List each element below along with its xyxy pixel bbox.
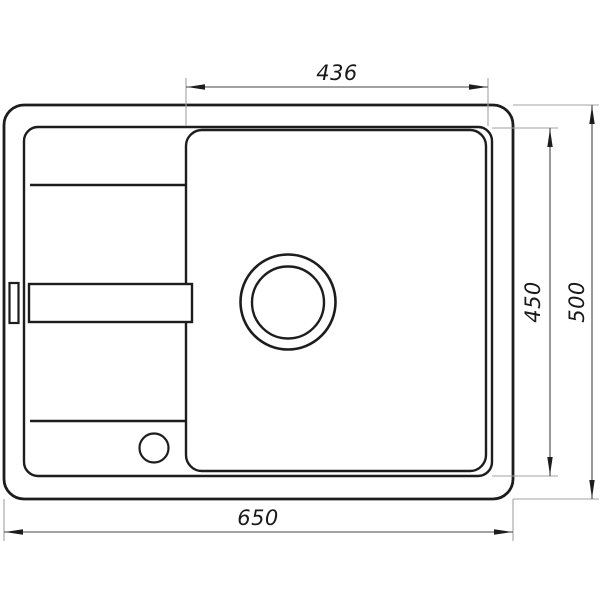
sink-technical-drawing: 436 450 500 650 <box>0 0 600 600</box>
arrowhead-left-icon <box>5 529 23 534</box>
drainboard <box>10 185 193 463</box>
dim-basin-width: 436 <box>186 61 488 126</box>
arrowhead-down-icon <box>589 480 594 498</box>
overflow-hole-marker <box>10 283 19 323</box>
drainboard-ledge-band <box>29 284 192 322</box>
arrowhead-down-icon <box>547 457 552 475</box>
dim-label-basin-depth: 450 <box>521 281 545 323</box>
drain <box>241 255 336 350</box>
drawing-svg: 436 450 500 650 <box>0 0 600 600</box>
drain-ring-inner <box>252 267 324 339</box>
dim-label-overall-width: 650 <box>237 506 279 530</box>
drain-ring-outer <box>241 255 336 350</box>
dim-basin-depth: 450 <box>492 128 558 476</box>
arrowhead-right-icon <box>494 529 512 534</box>
arrowhead-up-icon <box>547 129 552 147</box>
arrowhead-left-icon <box>187 84 205 89</box>
dim-label-overall-depth: 500 <box>565 281 589 323</box>
tap-hole <box>140 434 169 463</box>
arrowhead-right-icon <box>469 84 487 89</box>
arrowhead-up-icon <box>589 106 594 124</box>
dim-overall-width: 650 <box>4 499 513 541</box>
dim-label-basin-width: 436 <box>316 61 358 85</box>
